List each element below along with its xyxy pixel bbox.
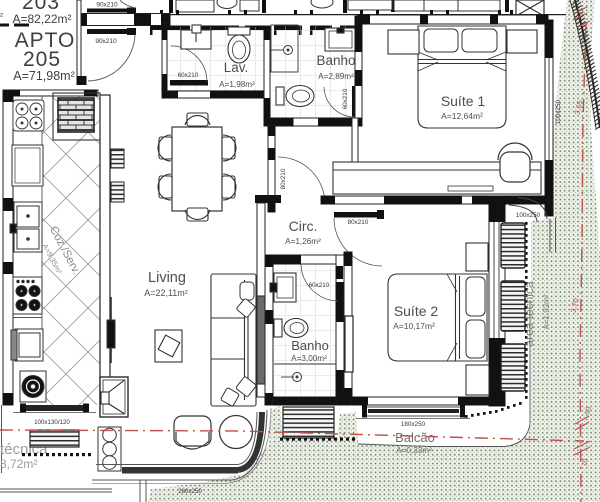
svg-text:280x250: 280x250 xyxy=(178,488,202,495)
svg-text:A=1,98m²: A=1,98m² xyxy=(219,80,255,89)
svg-text:Living: Living xyxy=(148,270,186,286)
svg-text:A=0,33m²: A=0,33m² xyxy=(396,446,432,455)
svg-text:A=3,00m²: A=3,00m² xyxy=(291,354,327,363)
svg-text:100x130/120: 100x130/120 xyxy=(34,419,70,426)
svg-text:A=2,89m²: A=2,89m² xyxy=(318,72,354,81)
svg-text:área técnica: área técnica xyxy=(522,281,536,347)
svg-text:8,72m²: 8,72m² xyxy=(0,457,37,471)
svg-text:A=1,92m²: A=1,92m² xyxy=(542,294,551,329)
svg-text:180x250: 180x250 xyxy=(401,421,426,428)
svg-text:60x210: 60x210 xyxy=(342,88,349,109)
svg-text:A=1,26m²: A=1,26m² xyxy=(285,237,321,246)
svg-text:Suíte 1: Suíte 1 xyxy=(441,93,486,109)
svg-text:Lav.: Lav. xyxy=(224,60,249,75)
svg-text:80x210: 80x210 xyxy=(348,219,369,226)
svg-text:A=10,17m²: A=10,17m² xyxy=(393,321,435,331)
svg-text:90x210: 90x210 xyxy=(95,38,117,45)
svg-text:A=22,11m²: A=22,11m² xyxy=(144,288,188,298)
svg-text:60x210: 60x210 xyxy=(309,282,330,289)
svg-text:A=12,64m²: A=12,64m² xyxy=(441,111,483,121)
svg-text:80x210: 80x210 xyxy=(280,168,287,189)
svg-text:Suíte 2: Suíte 2 xyxy=(394,303,439,319)
svg-text:205: 205 xyxy=(23,48,61,71)
svg-text:Banho: Banho xyxy=(316,53,355,68)
svg-text:100x250: 100x250 xyxy=(516,212,541,219)
svg-text:Circ.: Circ. xyxy=(289,218,318,234)
svg-text:60x210: 60x210 xyxy=(178,72,199,79)
svg-text:Balcão: Balcão xyxy=(395,430,435,445)
svg-text:²: ² xyxy=(0,11,3,21)
svg-text:90x210: 90x210 xyxy=(96,2,118,9)
svg-text:A=71,98m²: A=71,98m² xyxy=(13,69,75,83)
svg-text:Banho: Banho xyxy=(291,338,329,353)
svg-text:100x250: 100x250 xyxy=(555,99,562,124)
